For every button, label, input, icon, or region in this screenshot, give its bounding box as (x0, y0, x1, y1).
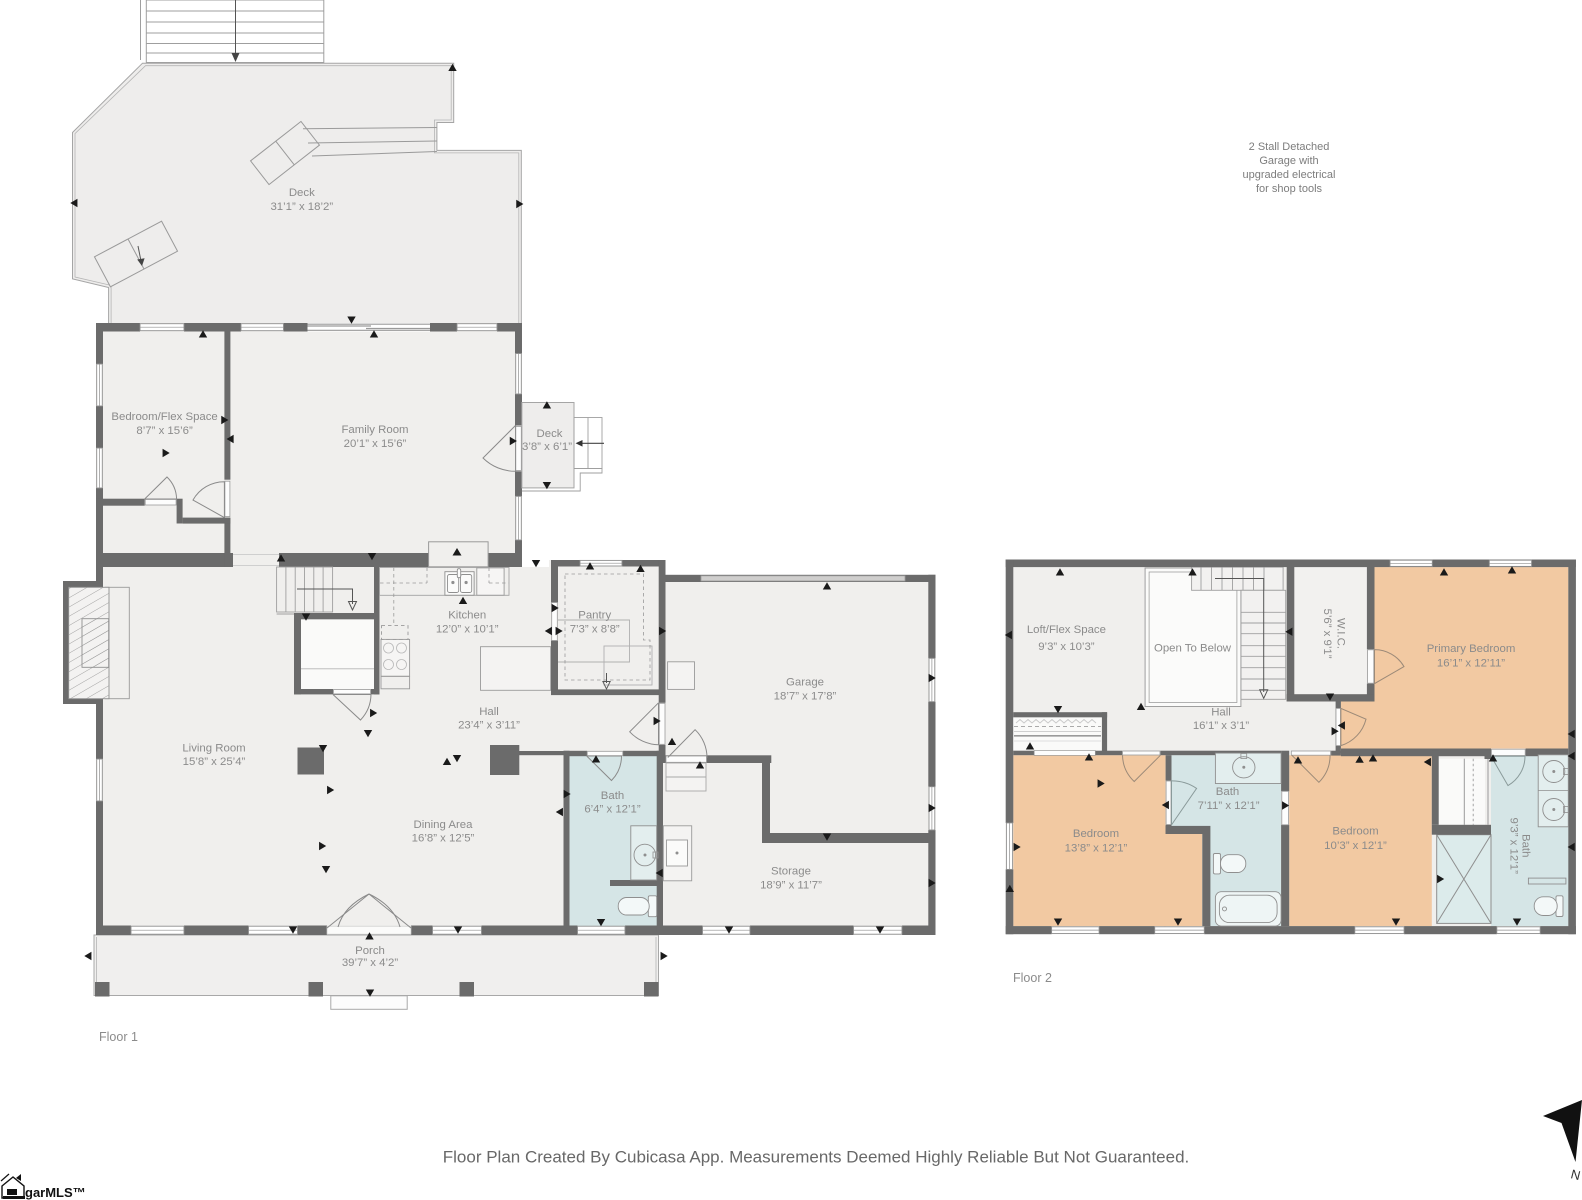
svg-text:5’6” x 9’1”: 5’6” x 9’1” (1321, 608, 1333, 658)
svg-text:Family Room: Family Room (341, 424, 408, 436)
svg-text:Pantry: Pantry (578, 610, 611, 622)
svg-text:8’7” x 15’6”: 8’7” x 15’6” (136, 425, 193, 437)
svg-text:Kitchen: Kitchen (448, 610, 486, 622)
svg-text:Hall: Hall (479, 706, 499, 718)
svg-text:16’1” x 12’11”: 16’1” x 12’11” (1437, 658, 1505, 670)
svg-text:Living Room: Living Room (182, 743, 245, 755)
svg-text:23’4” x 3’11”: 23’4” x 3’11” (458, 720, 520, 732)
svg-text:Primary Bedroom: Primary Bedroom (1427, 643, 1516, 655)
svg-text:13’8” x 12’1”: 13’8” x 12’1” (1065, 843, 1128, 855)
svg-text:Garage with: Garage with (1259, 155, 1318, 167)
svg-text:7’3” x 8’8”: 7’3” x 8’8” (570, 624, 620, 636)
svg-text:Porch: Porch (355, 945, 385, 957)
svg-text:Storage: Storage (771, 866, 811, 878)
svg-text:Garage: Garage (786, 677, 824, 689)
svg-text:6’4” x 12’1”: 6’4” x 12’1” (584, 804, 641, 816)
svg-text:upgraded electrical: upgraded electrical (1243, 169, 1336, 181)
svg-text:Dining Area: Dining Area (414, 819, 474, 831)
svg-text:Deck: Deck (289, 187, 315, 199)
svg-text:2 Stall Detached: 2 Stall Detached (1249, 141, 1330, 153)
svg-text:7’11” x 12’1”: 7’11” x 12’1” (1198, 800, 1260, 812)
svg-text:Hall: Hall (1211, 707, 1231, 719)
svg-text:Bath: Bath (601, 790, 624, 802)
svg-text:9’3” x 10’3”: 9’3” x 10’3” (1038, 641, 1095, 653)
svg-text:Open To Below: Open To Below (1154, 643, 1232, 655)
svg-text:Bedroom: Bedroom (1332, 826, 1378, 838)
svg-text:12’0” x 10’1”: 12’0” x 10’1” (436, 624, 499, 636)
svg-text:18’7” x 17’8”: 18’7” x 17’8” (774, 691, 837, 703)
svg-text:9’3” x 12’1”: 9’3” x 12’1” (1508, 818, 1520, 875)
svg-text:18’9” x 11’7”: 18’9” x 11’7” (760, 880, 822, 892)
svg-text:15’8” x 25’4”: 15’8” x 25’4” (183, 756, 246, 768)
svg-text:10’3” x 12’1”: 10’3” x 12’1” (1324, 840, 1387, 852)
svg-text:Floor Plan Created By Cubicasa: Floor Plan Created By Cubicasa App. Meas… (443, 1148, 1190, 1167)
svg-text:16’8” x 12’5”: 16’8” x 12’5” (412, 833, 475, 845)
svg-text:for shop tools: for shop tools (1256, 183, 1323, 195)
svg-text:garMLS™: garMLS™ (25, 1185, 86, 1200)
svg-text:Bath: Bath (1216, 786, 1239, 798)
svg-text:Bedroom/Flex Space: Bedroom/Flex Space (111, 411, 217, 423)
svg-text:16’1” x 3’1”: 16’1” x 3’1” (1193, 720, 1250, 732)
svg-text:Floor 1: Floor 1 (99, 1030, 138, 1044)
svg-text:W.I.C.: W.I.C. (1335, 618, 1347, 649)
svg-text:20’1” x 15’6”: 20’1” x 15’6” (344, 438, 407, 450)
svg-text:31’1” x 18’2”: 31’1” x 18’2” (270, 201, 333, 213)
svg-text:39’7” x 4’2”: 39’7” x 4’2” (342, 957, 399, 969)
svg-text:Deck: Deck (537, 428, 563, 440)
svg-text:Floor 2: Floor 2 (1013, 971, 1052, 985)
svg-text:Bath: Bath (1520, 834, 1532, 857)
svg-text:Loft/Flex Space: Loft/Flex Space (1027, 624, 1106, 636)
svg-text:3’8” x 6’1”: 3’8” x 6’1” (522, 441, 572, 453)
svg-text:Bedroom: Bedroom (1073, 828, 1119, 840)
